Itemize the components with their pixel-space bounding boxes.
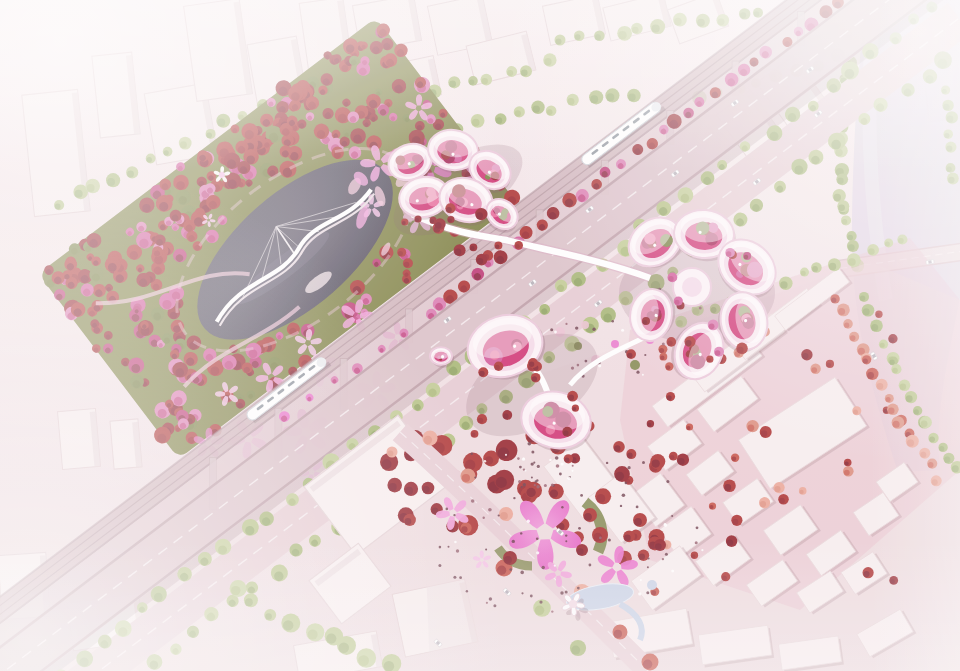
rendering-stage xyxy=(0,0,960,671)
atmospheric-haze xyxy=(0,0,960,671)
white-veil xyxy=(0,0,960,671)
aerial-rendering xyxy=(0,0,960,671)
